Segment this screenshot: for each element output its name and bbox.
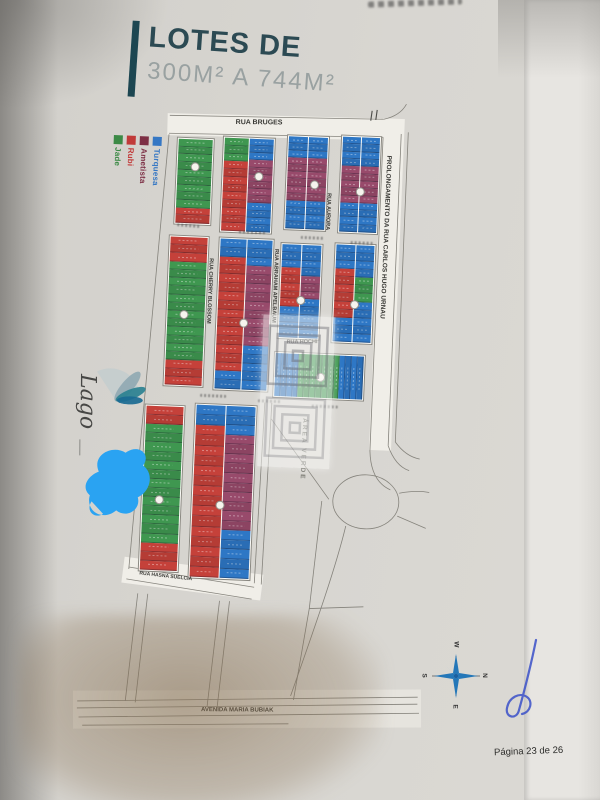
lot-ametista [287, 179, 306, 187]
lot-rubi [221, 215, 245, 224]
lot-ametista [288, 165, 307, 173]
compass-south-label: S [421, 673, 428, 677]
lot-block-q4 [337, 134, 382, 235]
lot-turquesa [361, 159, 379, 167]
lot-turquesa [302, 253, 321, 262]
lot-turquesa [340, 210, 358, 218]
lot-rubi [223, 169, 247, 178]
photographed-page: LOTES DE 300M² A 744M² TurquesaAmetistaR… [0, 0, 600, 800]
lot-rubi [334, 309, 353, 318]
lot-rubi [190, 556, 219, 567]
hand-shadow [18, 615, 383, 800]
lot-ametista [221, 521, 250, 532]
lot-turquesa [308, 144, 327, 152]
lot-block-q3 [283, 134, 330, 232]
lot-rubi [165, 376, 202, 386]
lot-ametista [301, 284, 320, 293]
lot-rubi [190, 567, 219, 578]
lot-rubi [165, 368, 202, 378]
lot-ametista [286, 193, 305, 201]
lot-turquesa [220, 559, 249, 570]
block-column [221, 138, 249, 232]
lot-rubi [335, 277, 354, 286]
lot-turquesa [356, 356, 364, 399]
lot-turquesa [352, 326, 371, 335]
lot-rubi [192, 516, 221, 527]
lago-script-text: Lago [75, 374, 100, 429]
compass-star-icon [428, 648, 484, 704]
blue-marker-blob [75, 439, 158, 527]
lot-turquesa [359, 210, 377, 218]
lot-turquesa [226, 415, 255, 426]
lot-turquesa [361, 145, 379, 153]
lot-jade [224, 145, 248, 154]
lot-jade [178, 146, 212, 155]
lot-turquesa [249, 146, 273, 154]
lot-turquesa [339, 224, 357, 232]
lot-ametista [222, 501, 251, 512]
block-column [285, 136, 308, 229]
lot-block-q1 [173, 137, 215, 227]
lot-ametista [225, 444, 254, 455]
lot-rubi [191, 536, 220, 547]
lot-turquesa [247, 210, 271, 218]
lot-turquesa [305, 222, 324, 230]
lot-rubi [195, 435, 224, 446]
lot-ametista [223, 482, 252, 493]
lot-turquesa [353, 310, 372, 319]
lot-turquesa [333, 325, 352, 334]
lot-turquesa [355, 269, 374, 278]
lot-ametista [341, 173, 359, 181]
lot-turquesa [306, 208, 325, 216]
lot-jade [169, 269, 206, 279]
lot-jade [166, 351, 203, 361]
lot-jade [168, 286, 205, 296]
lot-turquesa [358, 225, 376, 233]
lot-turquesa [332, 333, 351, 342]
lot-rubi [216, 353, 242, 363]
developer-watermark [257, 314, 335, 469]
lot-turquesa [196, 415, 225, 426]
lot-turquesa [288, 143, 307, 151]
lot-ametista [308, 165, 327, 173]
lot-turquesa [221, 540, 250, 551]
lot-turquesa [282, 252, 301, 261]
lot-rubi [223, 184, 247, 193]
lot-block-q2 [219, 136, 276, 235]
lot-turquesa [219, 568, 248, 579]
lot-turquesa [214, 380, 240, 390]
lot-rubi [218, 300, 244, 310]
lot-ametista [360, 174, 378, 182]
lot-block-q11 [187, 403, 257, 581]
lot-jade [177, 177, 211, 186]
lot-ametista [247, 196, 271, 204]
lot-rubi [216, 336, 242, 346]
lot-jade [354, 286, 373, 295]
compass-west-label: W [453, 641, 460, 647]
lot-turquesa [246, 248, 272, 258]
lot-turquesa [220, 247, 246, 257]
lot-turquesa [336, 252, 355, 261]
lot-rubi [222, 200, 246, 209]
block-column [219, 406, 255, 579]
lot-ametista [306, 194, 325, 202]
lot-turquesa [300, 307, 319, 316]
block-column [175, 139, 212, 224]
lot-rubi [194, 455, 223, 466]
lot-block-q5 [162, 234, 209, 388]
lot-turquesa [355, 253, 374, 262]
compass-rose: W N E S [428, 648, 484, 704]
block-column [246, 139, 274, 233]
lot-jade [167, 319, 204, 329]
lot-turquesa [285, 221, 304, 229]
lot-turquesa [342, 144, 360, 152]
lot-jade [176, 192, 210, 201]
lot-rubi [140, 551, 177, 562]
lot-turquesa [301, 268, 320, 277]
lot-ametista [245, 275, 271, 285]
block-column [352, 245, 375, 343]
lot-ametista [245, 293, 271, 303]
lot-rubi [140, 560, 177, 571]
lot-ametista [224, 463, 253, 474]
lot-turquesa [342, 158, 360, 166]
lot-block-q8 [330, 242, 376, 345]
compass-east-label: E [452, 704, 459, 708]
block-column [358, 137, 380, 233]
compass-north-label: N [481, 673, 488, 678]
lot-turquesa [352, 334, 371, 343]
lot-ametista [248, 182, 272, 190]
lot-rubi [218, 283, 244, 293]
lot-turquesa [286, 207, 305, 215]
lot-rubi [219, 265, 245, 275]
lot-rubi [281, 275, 300, 284]
street-label-rua-bruges: RUA BRUGES [236, 119, 283, 126]
lot-rubi [193, 475, 222, 486]
lot-rubi [334, 293, 353, 302]
lot-rubi [170, 245, 207, 255]
pen-signature [492, 634, 554, 729]
lot-jade [166, 335, 203, 345]
